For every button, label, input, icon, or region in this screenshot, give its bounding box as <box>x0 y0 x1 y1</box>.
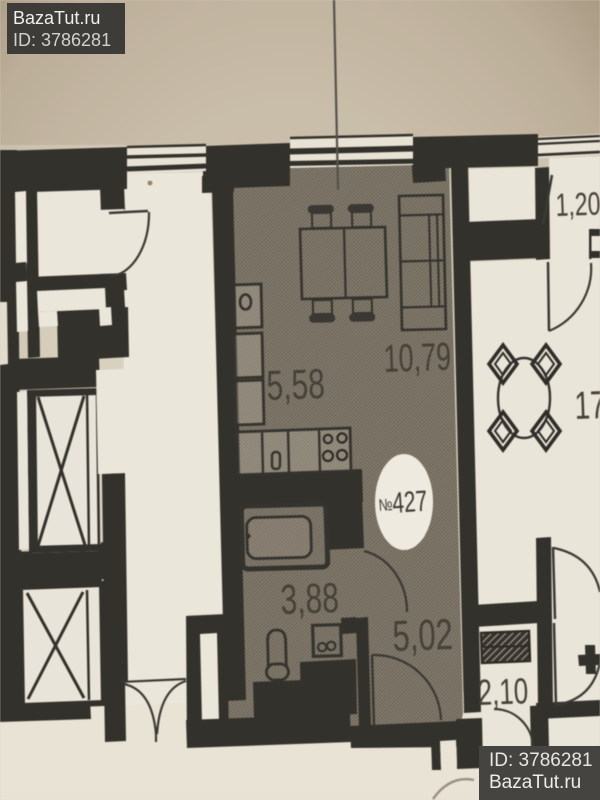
svg-text:5,02: 5,02 <box>392 610 454 660</box>
svg-text:10,79: 10,79 <box>383 336 452 381</box>
svg-text:№: № <box>378 495 393 515</box>
svg-text:3,88: 3,88 <box>280 574 340 623</box>
svg-text:17: 17 <box>574 383 600 428</box>
svg-text:5,58: 5,58 <box>266 360 326 409</box>
svg-text:427: 427 <box>391 485 428 520</box>
svg-text:2,10: 2,10 <box>477 670 529 713</box>
svg-text:1,20: 1,20 <box>555 186 600 223</box>
